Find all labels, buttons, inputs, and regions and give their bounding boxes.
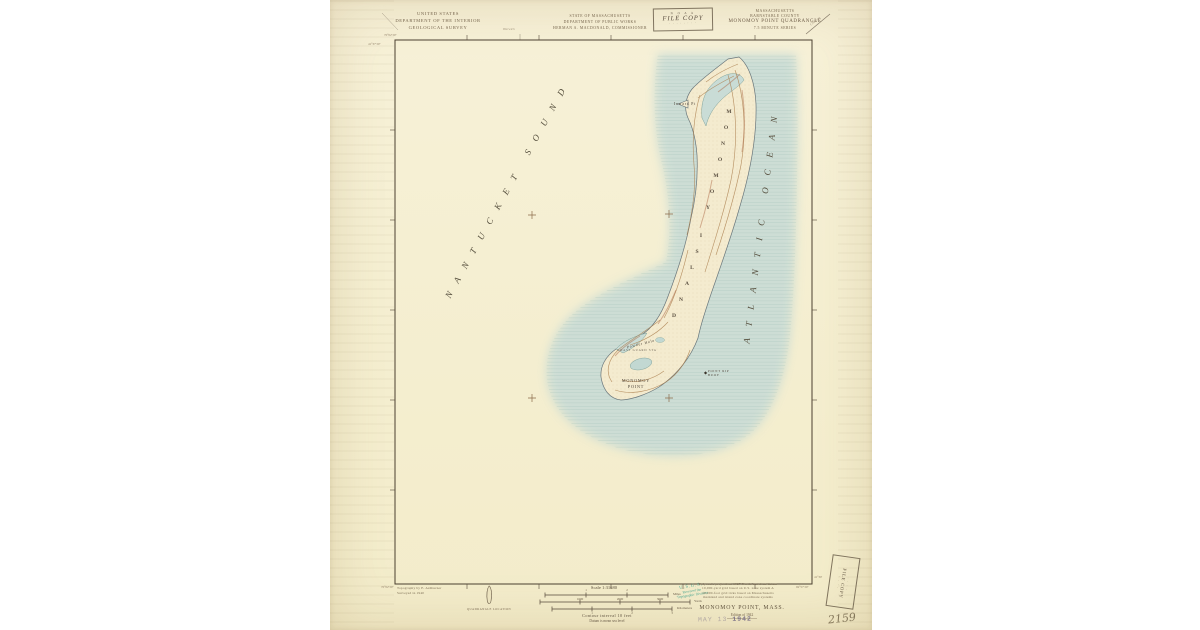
stamp-main-line: FILE COPY (654, 14, 712, 22)
corner-coord-br-lat: 41°30' (814, 575, 822, 579)
buoy-icon: ◆ (704, 370, 707, 375)
monomoy-point-label-1: MONOMOY (622, 378, 650, 383)
km-unit-label: Kilometers (677, 606, 692, 610)
scale-tick-number: 2 (631, 611, 633, 615)
date-stamp: MAY 13 1942 (698, 616, 752, 625)
inward-pt-label: Inward Pt (674, 102, 696, 107)
scale-tick-number: 2 (626, 588, 628, 592)
island-label-letter: I (700, 233, 702, 239)
pond (656, 338, 665, 343)
agency-line-1: UNITED STATES (417, 11, 459, 17)
scale-bars (540, 593, 690, 612)
scale-tick-number: 3000 (657, 597, 663, 601)
state-line-2: DEPARTMENT OF PUBLIC WORKS (564, 20, 637, 25)
island-label-letter: M (726, 109, 731, 115)
island-label-letter: O (710, 189, 714, 195)
island-label-letter: N (721, 141, 725, 147)
sheet-title: MONOMOY POINT, MASS. (699, 605, 784, 612)
datum-note: Datum is mean sea level (589, 619, 624, 623)
island-label-letter: O (718, 157, 722, 163)
monomoy-point-label-2: POINT (628, 384, 644, 389)
credit-line-2: Surveyed in 1940 (397, 591, 424, 596)
quad-location-caption: QUADRANGLE LOCATION (467, 608, 511, 612)
island-label-letter: M (713, 173, 718, 179)
island-label-letter: S (695, 249, 698, 255)
projection-note-4: mainland and island zone coordinate syst… (703, 595, 773, 600)
quad-location-inset (487, 586, 492, 604)
point-rip-label-2: BUOY (708, 374, 720, 378)
coast-guard-label: COAST GUARD STA (617, 349, 656, 353)
corner-coord-tl-lon: 70°02'30" (384, 33, 397, 37)
map-artwork (0, 0, 1200, 630)
quad-line-4: 7.5 MINUTE SERIES (754, 26, 797, 31)
state-line-1: STATE OF MASSACHUSETTS (569, 14, 630, 19)
scale-tick-number: 1000 (577, 597, 583, 601)
road-label-harwich: Harwich (503, 27, 515, 31)
date-stamp-year: 1942 (732, 616, 752, 623)
contour-note: Contour interval 10 feet (582, 613, 632, 618)
state-line-3: HERMAN A. MACDONALD, COMMISSIONER (553, 26, 647, 31)
date-stamp-month-day: MAY 13 (698, 616, 728, 624)
scanned-topo-map-sheet: UNITED STATES DEPARTMENT OF THE INTERIOR… (0, 0, 1200, 630)
handwritten-sheet-number: 2159 (827, 611, 856, 628)
island-label-letter: A (685, 281, 689, 287)
island-label-letter: O (724, 125, 728, 131)
file-copy-stamp: N O A A FILE COPY · · · · · · · · (653, 7, 713, 31)
yards-unit-label: Yards (694, 599, 702, 603)
island-label-letter: L (690, 265, 694, 271)
island-label-letter: N (679, 297, 683, 303)
scale-text: Scale 1:31680 (591, 585, 617, 591)
agency-line-2: DEPARTMENT OF THE INTERIOR (395, 18, 480, 24)
corner-coord-br-lon: 69°57'30" (796, 585, 809, 589)
scale-tick-number: 1 (591, 611, 593, 615)
agency-line-3: GEOLOGICAL SURVEY (409, 25, 468, 31)
quad-line-3: MONOMOY POINT QUADRANGLE (728, 19, 821, 25)
scale-tick-number: 1 (585, 588, 587, 592)
corner-coord-bl-lon: 70°02'30" (381, 585, 394, 589)
corner-coord-tl-lat: 41°37'30" (368, 42, 381, 46)
scale-tick-number: 3 (671, 611, 673, 615)
scale-tick-number: 2000 (617, 597, 623, 601)
island-label-letter: Y (706, 205, 710, 211)
island-label-letter: D (672, 313, 676, 319)
